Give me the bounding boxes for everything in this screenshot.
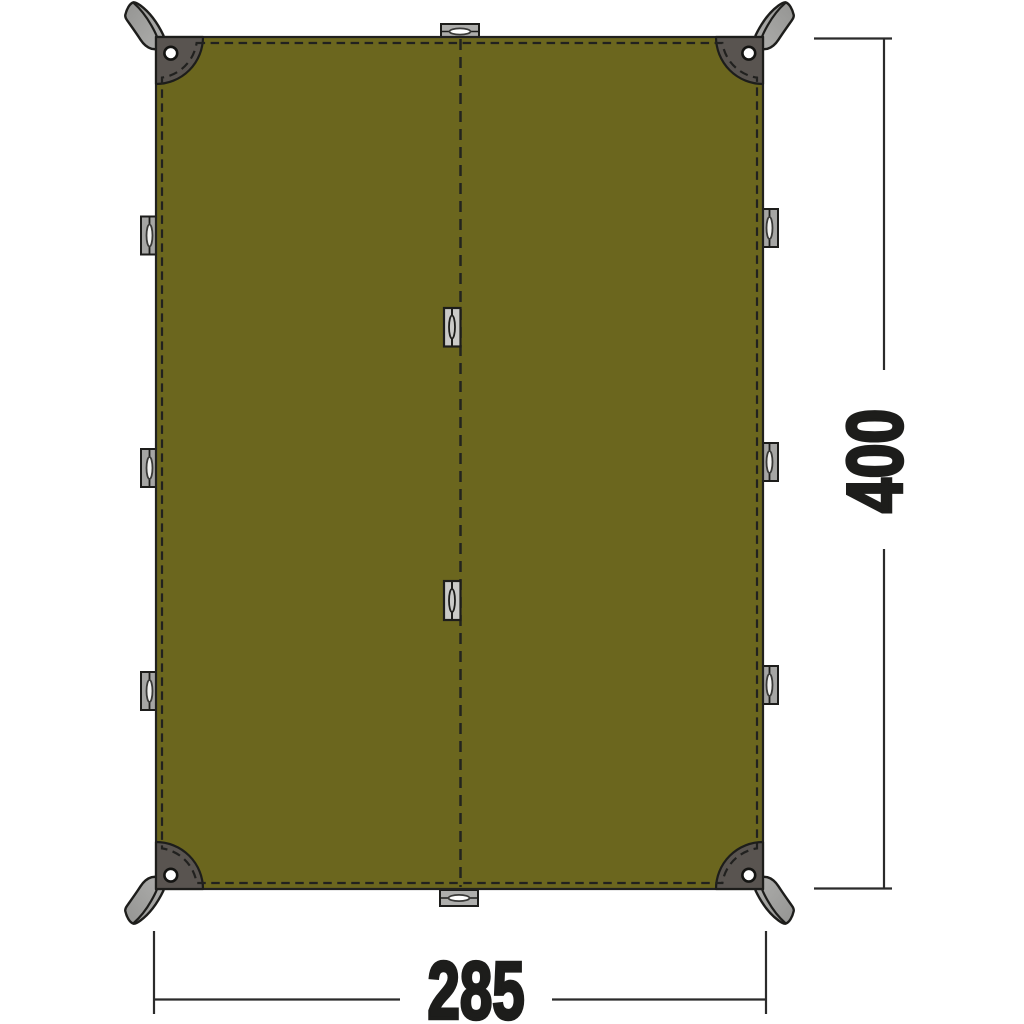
svg-text:400: 400 bbox=[831, 409, 918, 513]
svg-text:285: 285 bbox=[428, 946, 525, 1024]
